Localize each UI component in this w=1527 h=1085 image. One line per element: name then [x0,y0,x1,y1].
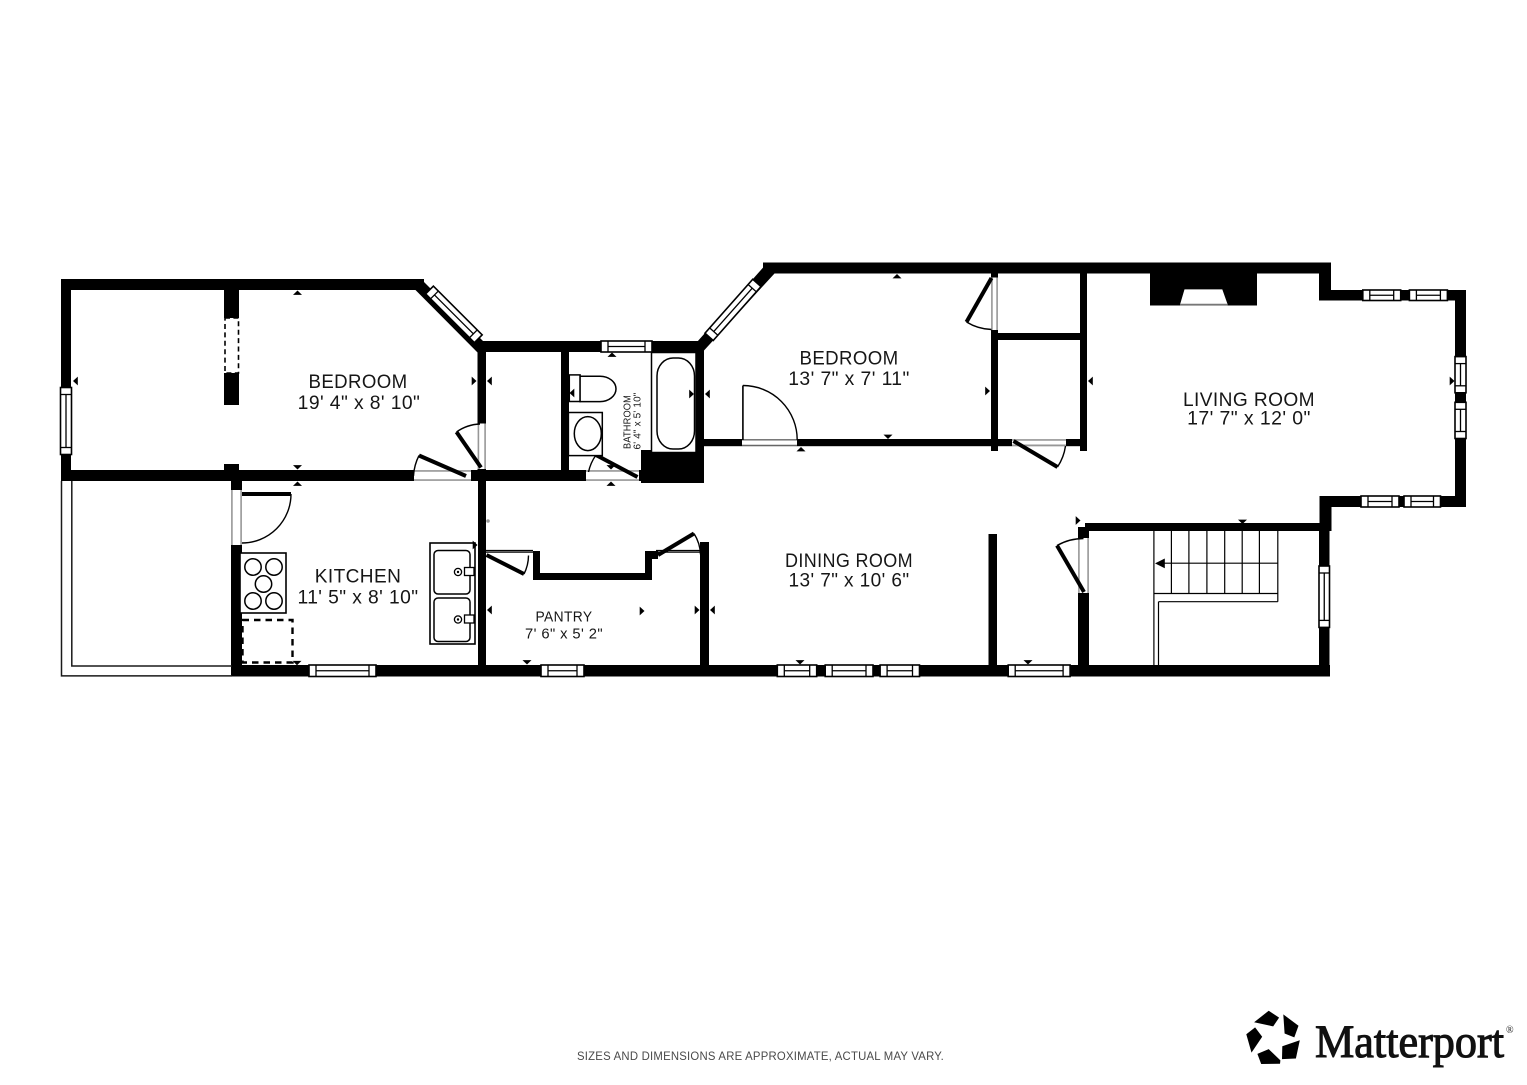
svg-text:KITCHEN: KITCHEN [315,567,402,588]
svg-text:SIZES AND DIMENSIONS ARE APPRO: SIZES AND DIMENSIONS ARE APPROXIMATE, AC… [577,1049,944,1063]
svg-text:13' 7" x 10' 6": 13' 7" x 10' 6" [789,571,910,592]
svg-text:BEDROOM: BEDROOM [309,372,408,393]
svg-text:®: ® [1506,1025,1514,1036]
svg-text:19' 4" x 8' 10": 19' 4" x 8' 10" [298,393,421,414]
svg-text:PANTRY: PANTRY [536,610,593,626]
svg-text:BEDROOM: BEDROOM [800,349,899,370]
svg-text:13' 7" x 7' 11": 13' 7" x 7' 11" [788,369,910,390]
svg-text:Matterport: Matterport [1315,1016,1504,1068]
svg-text:11' 5" x 8' 10": 11' 5" x 8' 10" [298,588,419,609]
svg-text:6' 4" x 5' 10": 6' 4" x 5' 10" [632,392,644,449]
svg-text:17' 7" x 12' 0": 17' 7" x 12' 0" [1187,409,1311,430]
svg-text:DINING ROOM: DINING ROOM [785,551,913,572]
svg-text:7' 6" x 5' 2": 7' 6" x 5' 2" [525,627,603,643]
